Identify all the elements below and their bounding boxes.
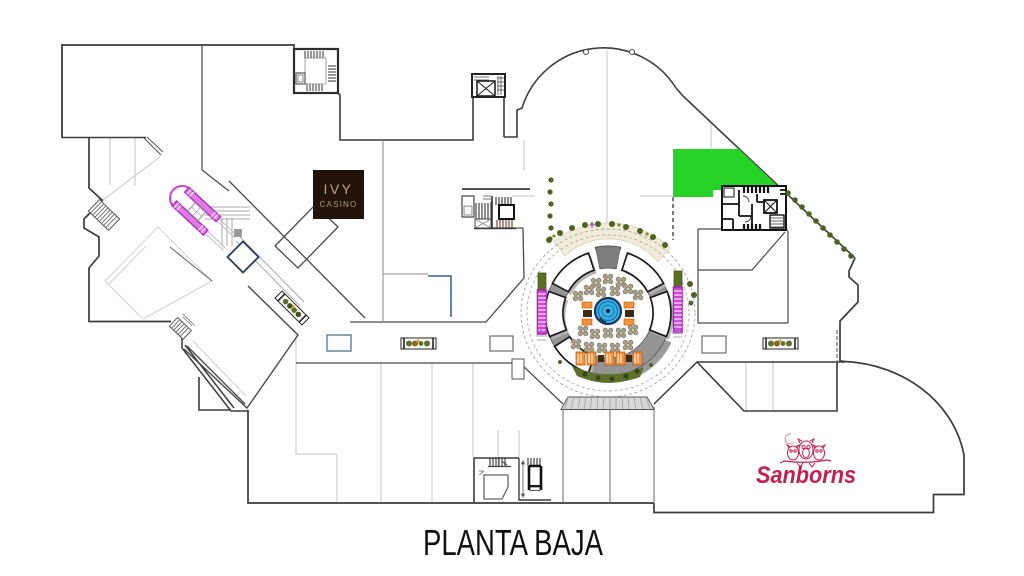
svg-text:CASINO: CASINO	[320, 200, 358, 209]
svg-text:IVY: IVY	[323, 181, 353, 197]
svg-text:PLANTA BAJA: PLANTA BAJA	[423, 522, 603, 563]
svg-text:Sanborns: Sanborns	[756, 462, 856, 489]
